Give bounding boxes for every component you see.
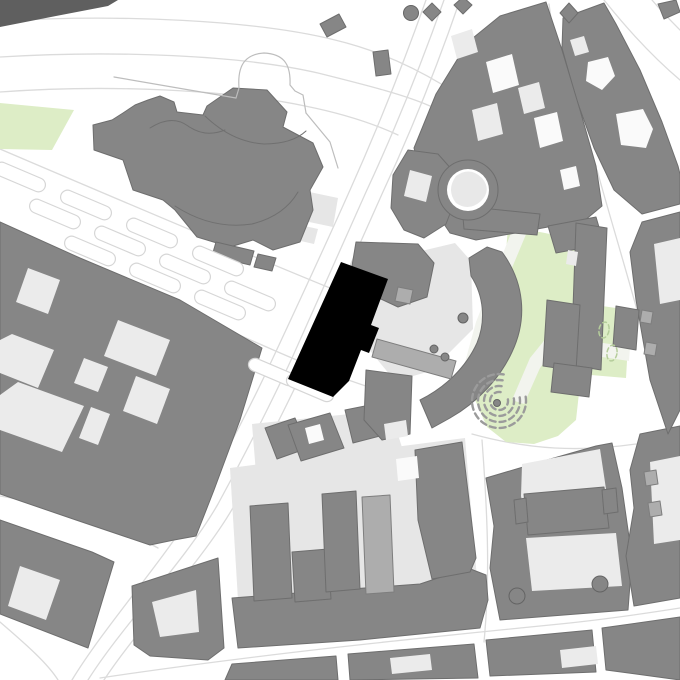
tower-circles-shape [458,313,468,323]
building-courtyards-light-shape [566,250,578,266]
tower-circles-shape [441,353,449,361]
buildings-shape [320,14,346,37]
edge-strip-dark [0,0,118,27]
buildings-over-shape [543,300,580,371]
medium-structures-shape [362,495,394,594]
medium-structures-shape [640,310,653,324]
buildings-over-shape [613,306,639,350]
buildings-shape [225,656,338,680]
tower-circles-shape [494,400,501,407]
buildings-shape [423,3,441,21]
buildings-shape [254,254,276,271]
site-plan-map [0,0,680,680]
outline-decor-shape [114,77,236,98]
buildings-shape [602,617,680,680]
medium-structures-shape [648,501,662,517]
parking-strips-shape [0,160,48,194]
buildings-over-shape [602,488,618,514]
tower-circles-shape [404,6,419,21]
buildings-shape [250,503,292,601]
building-courtyards-white-shape [396,456,419,481]
tower-circles-shape [509,588,525,604]
medium-structures-shape [644,342,657,356]
buildings-over-shape [514,498,528,524]
buildings-over-shape [524,487,609,535]
map-canvas [0,0,680,680]
medium-structures-shape [644,470,658,486]
edge-strip-dark-shape [0,0,118,27]
buildings-over-shape [551,363,592,397]
tower-circles-shape [430,345,438,353]
buildings-shape [658,0,680,19]
buildings-shape [322,491,360,592]
tower-circles-shape [592,576,608,592]
green-areas-shape [0,103,74,150]
buildings-shape [454,0,472,14]
medium-structures-shape [395,287,413,304]
buildings-shape [373,50,391,76]
street-lines-shape [0,54,430,106]
building-courtyards-light-shape [650,456,680,544]
